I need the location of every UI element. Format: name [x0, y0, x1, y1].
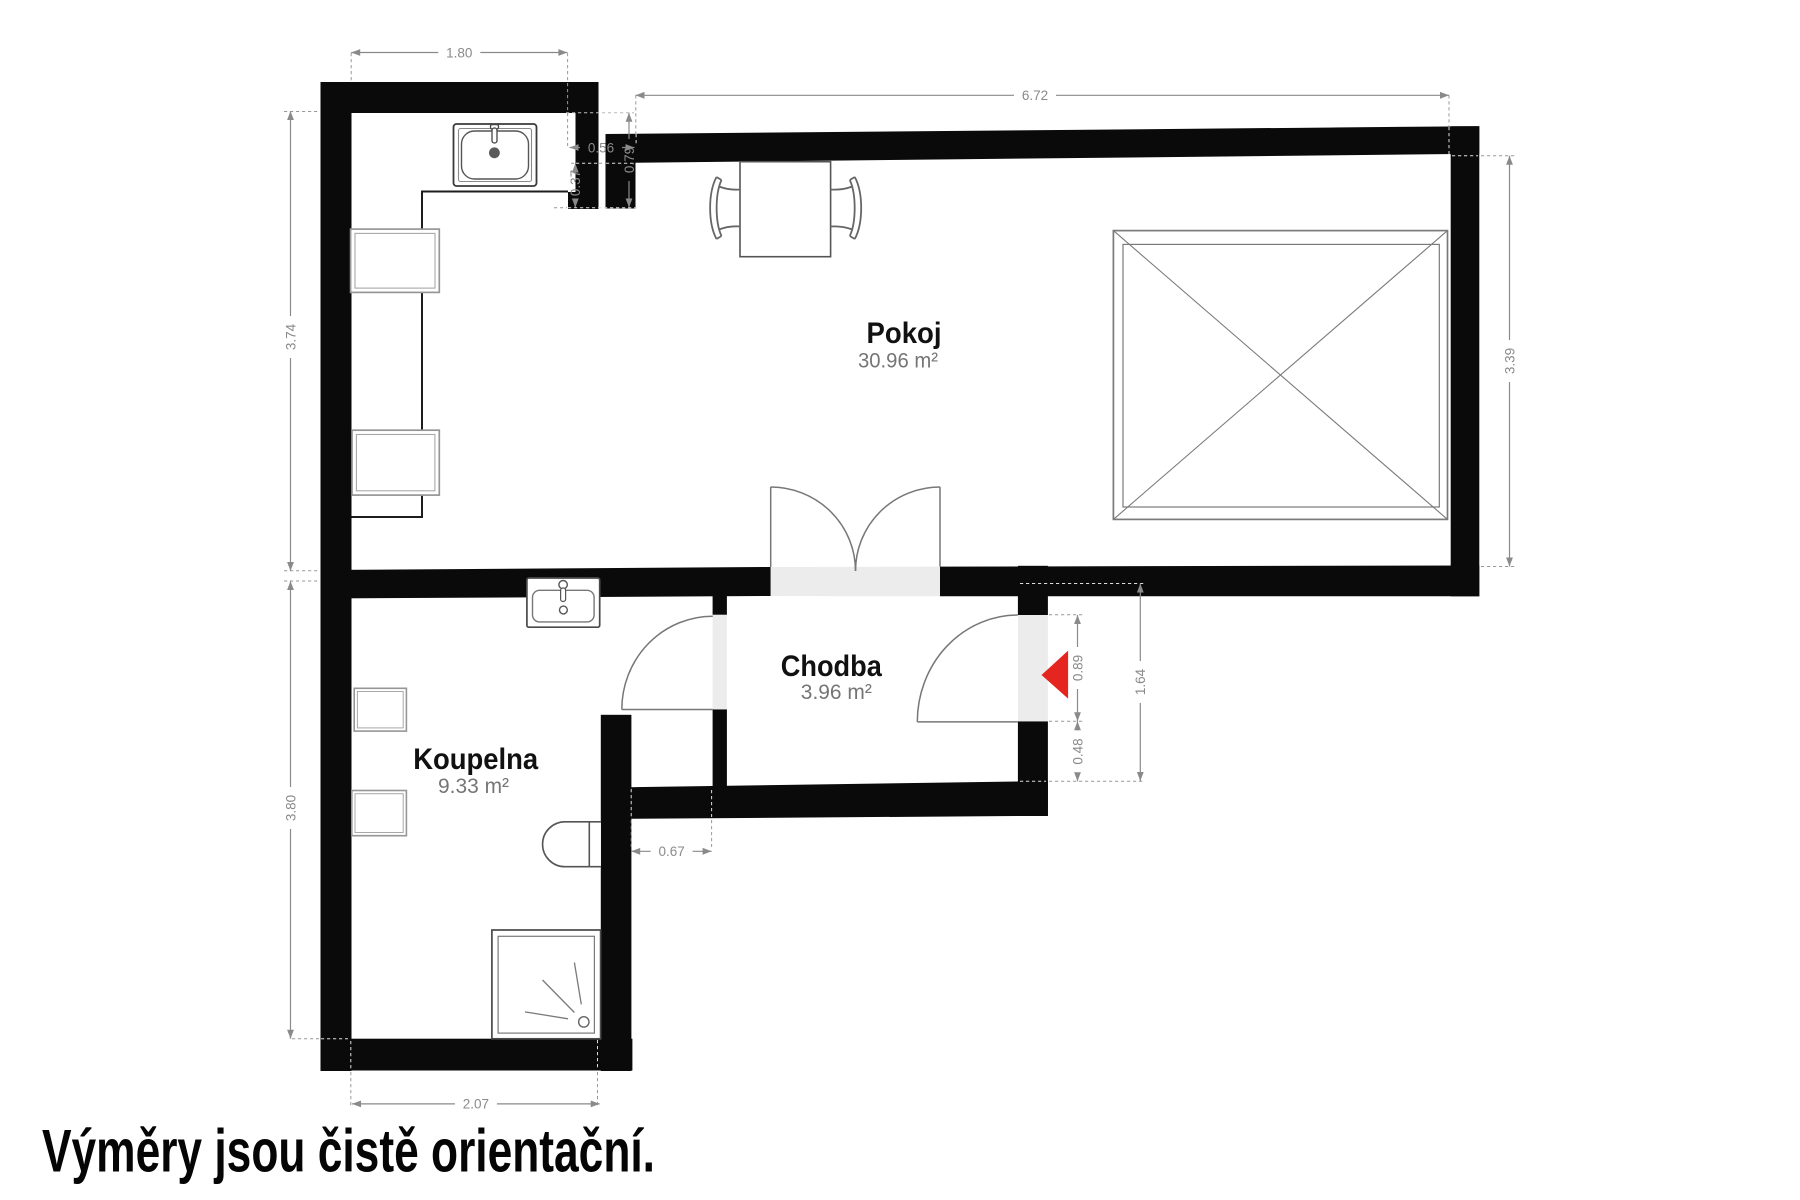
svg-text:3.39: 3.39: [1502, 348, 1517, 374]
svg-text:2.07: 2.07: [463, 1097, 489, 1112]
svg-text:Koupelna: Koupelna: [413, 743, 538, 776]
svg-text:1.64: 1.64: [1133, 668, 1148, 695]
svg-text:0.67: 0.67: [658, 844, 684, 859]
svg-text:30.96 m²: 30.96 m²: [858, 350, 938, 373]
svg-text:1.80: 1.80: [446, 45, 472, 60]
svg-text:6.72: 6.72: [1022, 88, 1048, 103]
svg-text:3.96 m²: 3.96 m²: [801, 681, 872, 704]
svg-text:0.89: 0.89: [1070, 655, 1085, 681]
svg-text:Chodba: Chodba: [781, 650, 882, 683]
svg-text:Výměry jsou čistě orientační.: Výměry jsou čistě orientační.: [42, 1118, 655, 1185]
svg-text:3.74: 3.74: [283, 323, 298, 350]
svg-text:3.80: 3.80: [283, 795, 298, 821]
svg-text:0.56: 0.56: [588, 140, 614, 155]
svg-text:0.37: 0.37: [568, 170, 583, 196]
svg-text:0.79: 0.79: [622, 147, 637, 173]
svg-text:0.48: 0.48: [1070, 738, 1085, 764]
svg-text:9.33 m²: 9.33 m²: [438, 775, 509, 798]
svg-text:Pokoj: Pokoj: [867, 317, 942, 350]
